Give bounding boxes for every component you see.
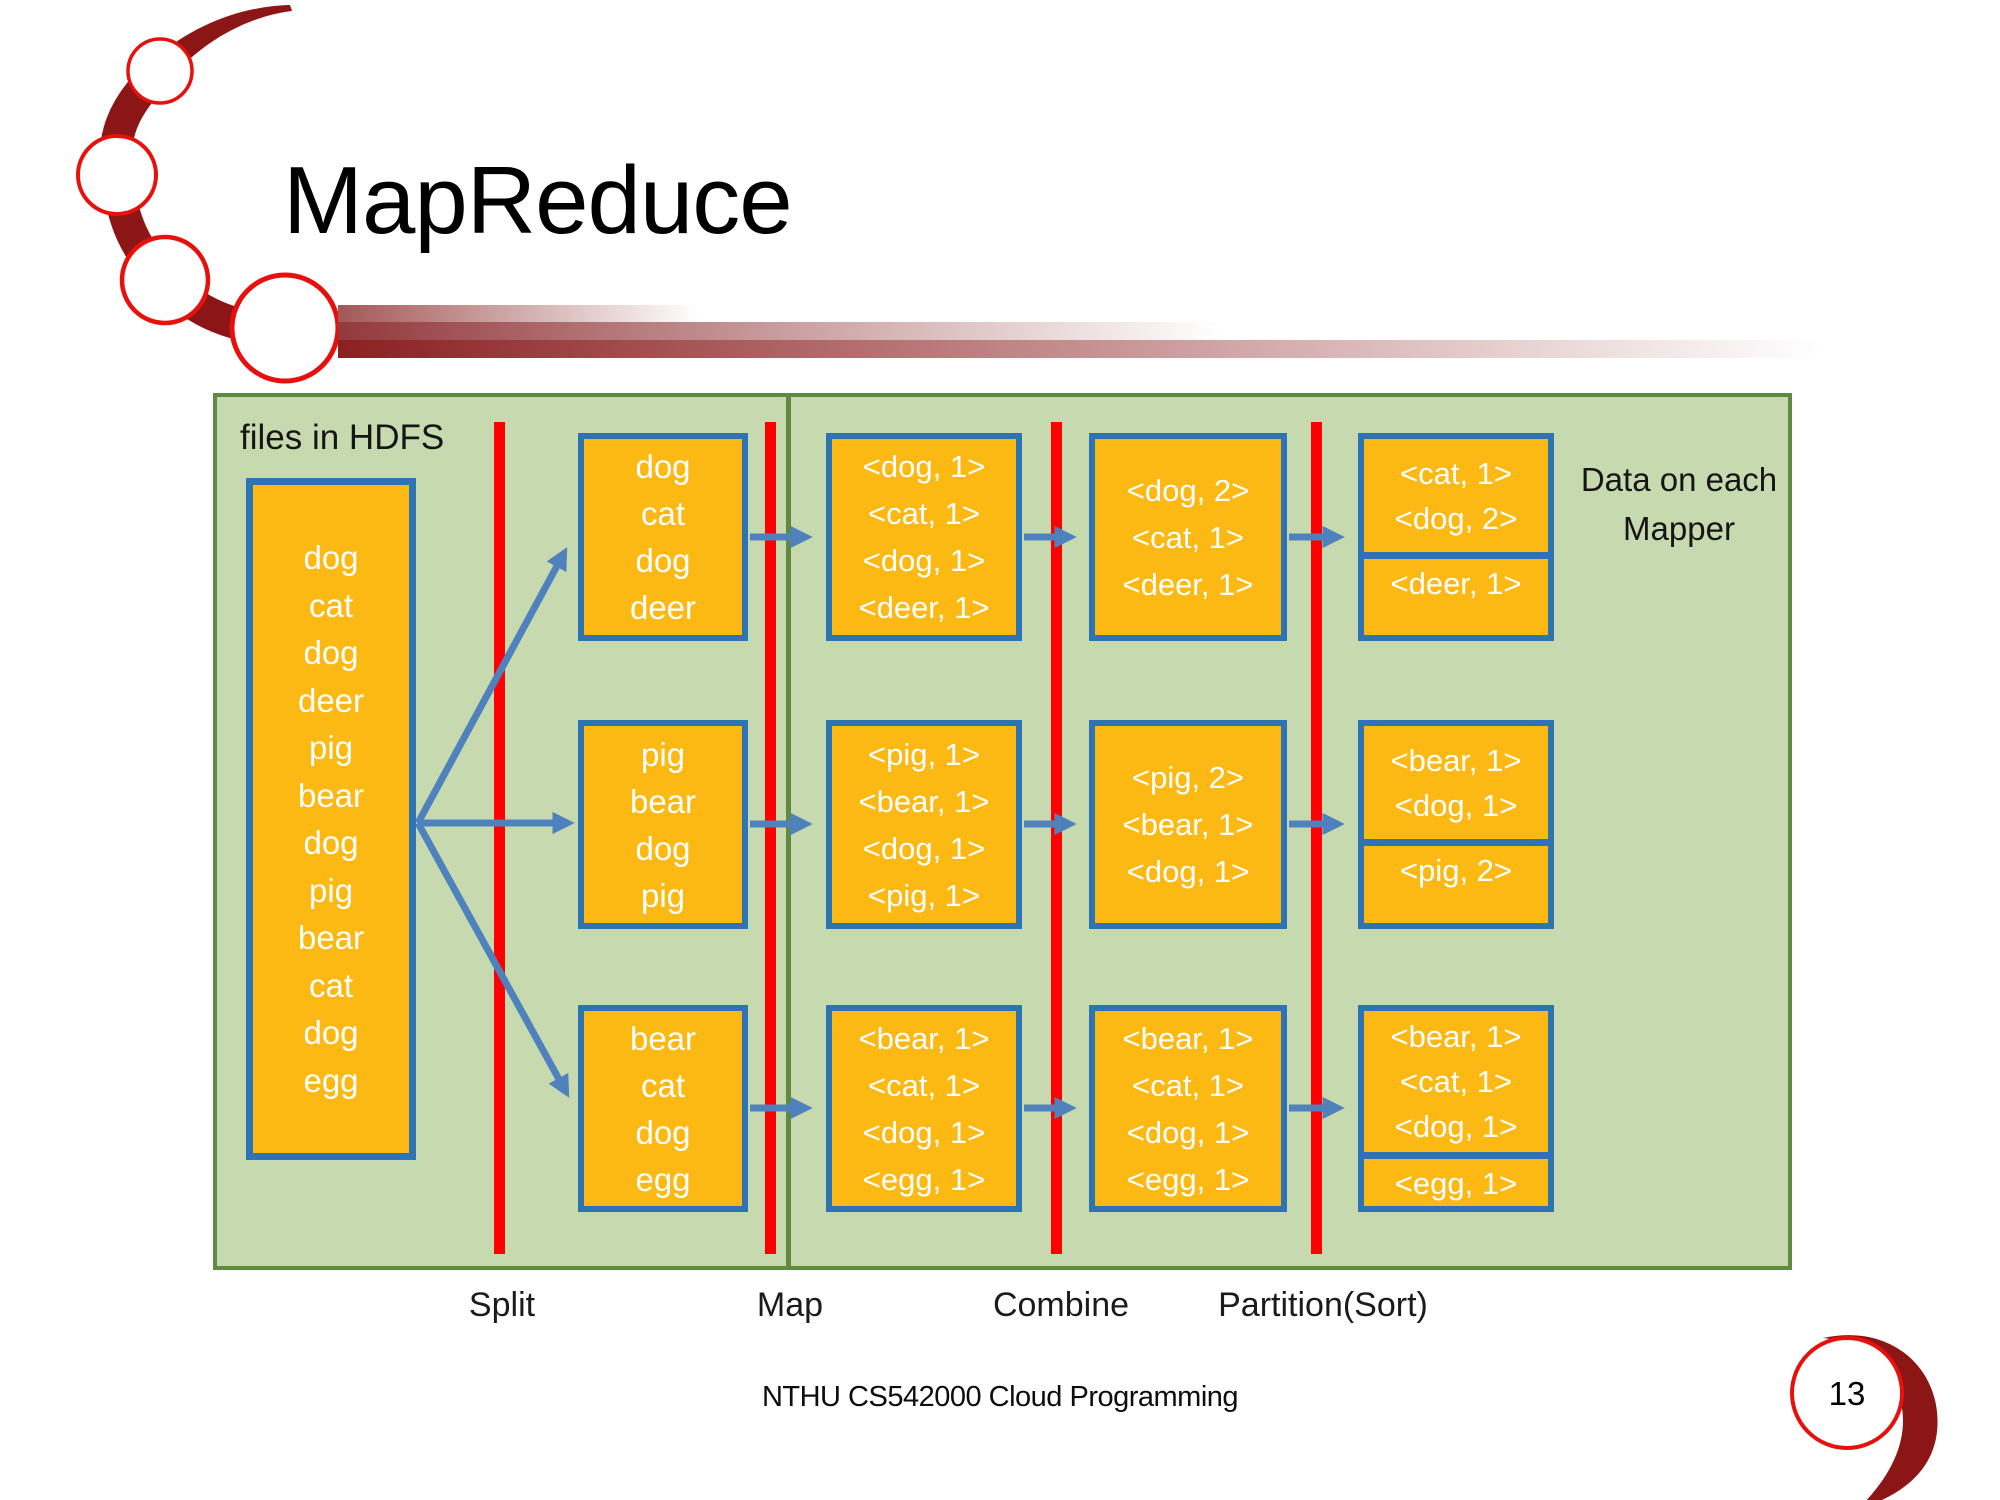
logo-circle-3	[122, 237, 208, 323]
partition-bottom-section-row2: <pig, 2>	[1364, 846, 1548, 923]
mapper-note: Data on each Mapper	[1563, 455, 1795, 553]
stage-label-partition: Partition(Sort)	[1218, 1286, 1428, 1325]
stage-label-map: Map	[757, 1286, 823, 1325]
text-line: <pig, 2>	[1132, 754, 1244, 801]
page-badge-circle	[1792, 1338, 1902, 1448]
text-line: <dog, 1>	[863, 1109, 985, 1156]
combine-output-box-row1: <dog, 2><cat, 1><deer, 1>	[1089, 433, 1287, 641]
slide-footer: NTHU CS542000 Cloud Programming	[762, 1381, 1238, 1414]
partition-top-section-row2: <bear, 1><dog, 1>	[1364, 726, 1548, 839]
text-line: <cat, 1>	[868, 1062, 980, 1109]
title-rule-bottom	[338, 340, 1868, 358]
text-line: dog	[635, 825, 690, 872]
title-rule-middle	[338, 322, 1258, 340]
partition-box-row1: <cat, 1><dog, 2> <deer, 1>	[1358, 433, 1554, 641]
text-line: <dog, 1>	[1395, 783, 1517, 828]
text-line: <dog, 1>	[863, 537, 985, 584]
stage-label-split: Split	[469, 1286, 535, 1325]
split-box-row1: dogcatdogdeer	[578, 433, 748, 641]
logo-circle-2	[78, 136, 156, 214]
map-output-box-row1: <dog, 1><cat, 1><dog, 1><deer, 1>	[826, 433, 1022, 641]
page-number-badge: 13	[1758, 1318, 2000, 1500]
text-line: bear	[298, 914, 364, 962]
text-line: cat	[309, 582, 353, 630]
text-line: cat	[309, 962, 353, 1010]
text-line: cat	[641, 1062, 685, 1109]
text-line: <deer, 1>	[1122, 561, 1253, 608]
partition-box-row3: <bear, 1><cat, 1><dog, 1> <egg, 1>	[1358, 1005, 1554, 1212]
split-box-row3: bearcatdogegg	[578, 1005, 748, 1212]
text-line: dog	[635, 537, 690, 584]
text-line: egg	[303, 1057, 358, 1105]
hdfs-input-file-box: dogcatdogdeerpigbeardogpigbearcatdogegg	[246, 478, 416, 1160]
mapper-note-line1: Data on each	[1563, 455, 1795, 504]
text-line: pig	[309, 724, 353, 772]
text-line: <bear, 1>	[1390, 1014, 1521, 1059]
text-line: dog	[303, 629, 358, 677]
combine-output-box-row3: <bear, 1><cat, 1><dog, 1><egg, 1>	[1089, 1005, 1287, 1212]
partition-stage-line	[1311, 422, 1322, 1254]
split-box-row2: pigbeardogpig	[578, 720, 748, 929]
slide-canvas: MapReduce files in HDFS Data on each Map…	[0, 0, 2000, 1500]
partition-top-section-row3: <bear, 1><cat, 1><dog, 1>	[1364, 1011, 1548, 1152]
text-line: pig	[641, 872, 685, 919]
text-line: <dog, 1>	[863, 825, 985, 872]
hdfs-label: files in HDFS	[240, 418, 444, 458]
text-line: <bear, 1>	[858, 778, 989, 825]
text-line: <egg, 1>	[863, 1156, 985, 1203]
text-line: pig	[641, 731, 685, 778]
text-line: bear	[630, 778, 696, 825]
partition-box-row2: <bear, 1><dog, 1> <pig, 2>	[1358, 720, 1554, 929]
text-line: dog	[303, 819, 358, 867]
logo-circle-4	[232, 275, 338, 381]
text-line: dog	[303, 534, 358, 582]
text-line: deer	[630, 584, 696, 631]
text-line: <bear, 1>	[1390, 738, 1521, 783]
text-line: <dog, 1>	[1395, 1104, 1517, 1149]
text-line: <dog, 2>	[1395, 496, 1517, 541]
text-line: <bear, 1>	[858, 1015, 989, 1062]
combine-stage-line	[1051, 422, 1062, 1254]
partition-bottom-section-row1: <deer, 1>	[1364, 559, 1548, 635]
text-line: <bear, 1>	[1122, 1015, 1253, 1062]
text-line: <egg, 1>	[1395, 1161, 1517, 1206]
text-line: <pig, 2>	[1400, 848, 1512, 893]
text-line: bear	[298, 772, 364, 820]
text-line: <deer, 1>	[1390, 561, 1521, 606]
logo-circle-1	[128, 39, 192, 103]
map-output-box-row3: <bear, 1><cat, 1><dog, 1><egg, 1>	[826, 1005, 1022, 1212]
text-line: dog	[635, 443, 690, 490]
map-stage-line	[765, 422, 776, 1254]
text-line: <cat, 1>	[1400, 1059, 1512, 1104]
stage-label-combine: Combine	[993, 1286, 1129, 1325]
text-line: dog	[303, 1009, 358, 1057]
text-line: <cat, 1>	[1400, 451, 1512, 496]
split-stage-line	[494, 422, 505, 1254]
text-line: <egg, 1>	[1127, 1156, 1249, 1203]
text-line: bear	[630, 1015, 696, 1062]
text-line: <pig, 1>	[868, 872, 980, 919]
partition-bottom-section-row3: <egg, 1>	[1364, 1159, 1548, 1206]
slide-title: MapReduce	[283, 146, 792, 256]
text-line: cat	[641, 490, 685, 537]
partition-top-section-row1: <cat, 1><dog, 2>	[1364, 439, 1548, 552]
text-line: dog	[635, 1109, 690, 1156]
text-line: <dog, 1>	[1127, 1109, 1249, 1156]
text-line: <cat, 1>	[868, 490, 980, 537]
text-line: <pig, 1>	[868, 731, 980, 778]
text-line: egg	[635, 1156, 690, 1203]
text-line: <dog, 2>	[1127, 467, 1249, 514]
page-number: 13	[1829, 1375, 1866, 1412]
text-line: <cat, 1>	[1132, 514, 1244, 561]
map-output-box-row2: <pig, 1><bear, 1><dog, 1><pig, 1>	[826, 720, 1022, 929]
swoosh-tail	[150, 5, 292, 82]
combine-output-box-row2: <pig, 2><bear, 1><dog, 1>	[1089, 720, 1287, 929]
panel-divider	[786, 393, 791, 1270]
text-line: <dog, 1>	[1127, 848, 1249, 895]
title-rule-top	[338, 305, 718, 322]
text-line: <cat, 1>	[1132, 1062, 1244, 1109]
text-line: deer	[298, 677, 364, 725]
text-line: <dog, 1>	[863, 443, 985, 490]
mapper-note-line2: Mapper	[1563, 504, 1795, 553]
text-line: <deer, 1>	[858, 584, 989, 631]
text-line: pig	[309, 867, 353, 915]
swoosh-band	[116, 71, 285, 330]
text-line: <bear, 1>	[1122, 801, 1253, 848]
page-badge-crescent	[1823, 1335, 1938, 1500]
